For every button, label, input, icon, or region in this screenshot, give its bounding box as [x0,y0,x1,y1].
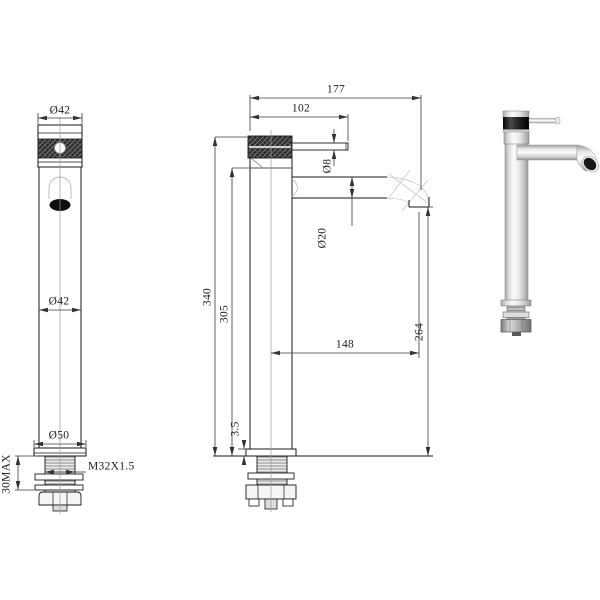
washer-upper-front [35,474,83,480]
dim-handle-reach-label: 102 [292,103,310,115]
spout-elbow [387,170,429,211]
threaded-stem-side [257,456,287,486]
render-stem-stub [512,332,521,336]
dim-spout-reach-label: 148 [336,339,354,351]
render-handle-cap [503,111,529,118]
render-nut [501,320,531,333]
render-handle-knurl [503,117,529,130]
dim-overall-reach-label: 177 [327,84,345,96]
render-spout [517,145,577,160]
dim-max-mounting-thickness-label: 30MAX [1,454,13,494]
dim-front-body-diameter-label: Ø42 [49,296,70,308]
lever-rod [292,143,348,150]
render-collar [504,131,529,144]
dim-outlet-height-label: 264 [414,323,426,341]
washer-lower-front [35,485,83,490]
dim-spout-diameter-label: Ø20 [317,228,329,249]
render-washer [503,312,529,318]
render-lever-tip [556,118,561,125]
dim-front-base-diameter-label: Ø50 [49,430,70,442]
render-base-plate [501,300,531,306]
drawing-canvas [0,0,600,600]
dim-body-height-label: 305 [219,305,231,323]
dim-base-plate-thickness-label: 3.5 [230,421,242,436]
side-view-drawing [213,95,433,512]
dim-lever-diameter-label: Ø8 [322,159,334,174]
dim-overall-height-label: 340 [202,288,214,306]
dim-thread-spec-label: M32X1.5 [88,461,135,473]
technical-drawing-page: Ø42 Ø42 Ø50 M32X1.5 30MAX 177 102 Ø8 Ø20… [0,0,600,600]
dim-front-top-diameter-label: Ø42 [50,105,71,117]
rendered-view [501,111,600,336]
render-lever [529,119,556,124]
front-view-drawing [15,113,86,514]
